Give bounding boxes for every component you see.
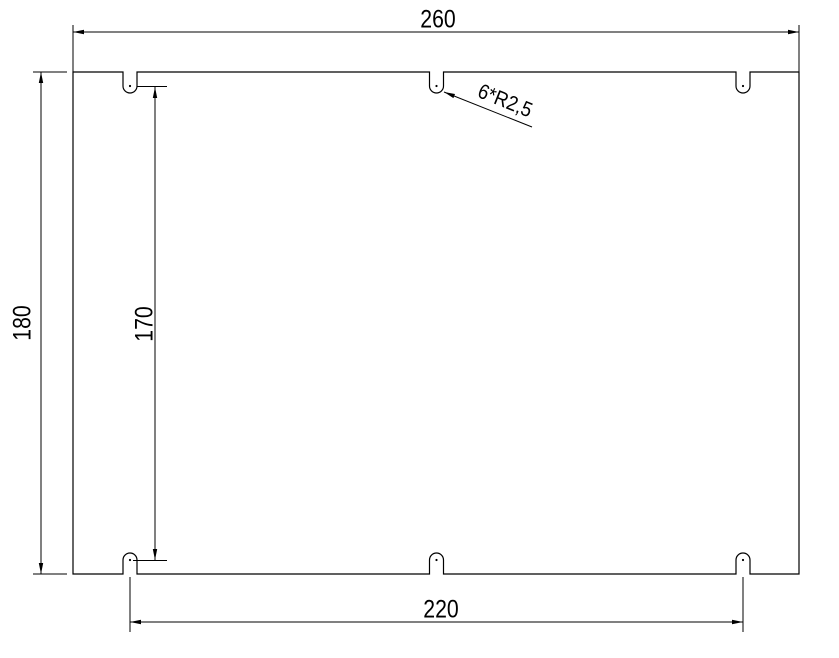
arrowhead: [153, 87, 157, 98]
dimension-overall-height: [33, 72, 67, 574]
arrowhead: [39, 72, 43, 83]
arrowhead: [732, 620, 743, 624]
dimension-label-overall-width: 260: [420, 8, 455, 33]
dimension-label-notch-spacing: 220: [423, 598, 458, 623]
arrowhead: [73, 30, 84, 34]
arrowhead: [444, 92, 455, 98]
dimension-label-overall-height: 180: [11, 305, 36, 340]
plate-outline: [73, 72, 799, 574]
arrowhead: [39, 563, 43, 574]
arrowhead: [788, 30, 799, 34]
cad-drawing: [0, 0, 839, 658]
arrowhead: [153, 549, 157, 560]
drawing-canvas: 260 180 170 220 6*R2,5: [0, 0, 839, 658]
notch-center-marks: [129, 85, 744, 561]
dimension-label-notch-center-height: 170: [133, 306, 158, 341]
arrowhead: [130, 620, 141, 624]
